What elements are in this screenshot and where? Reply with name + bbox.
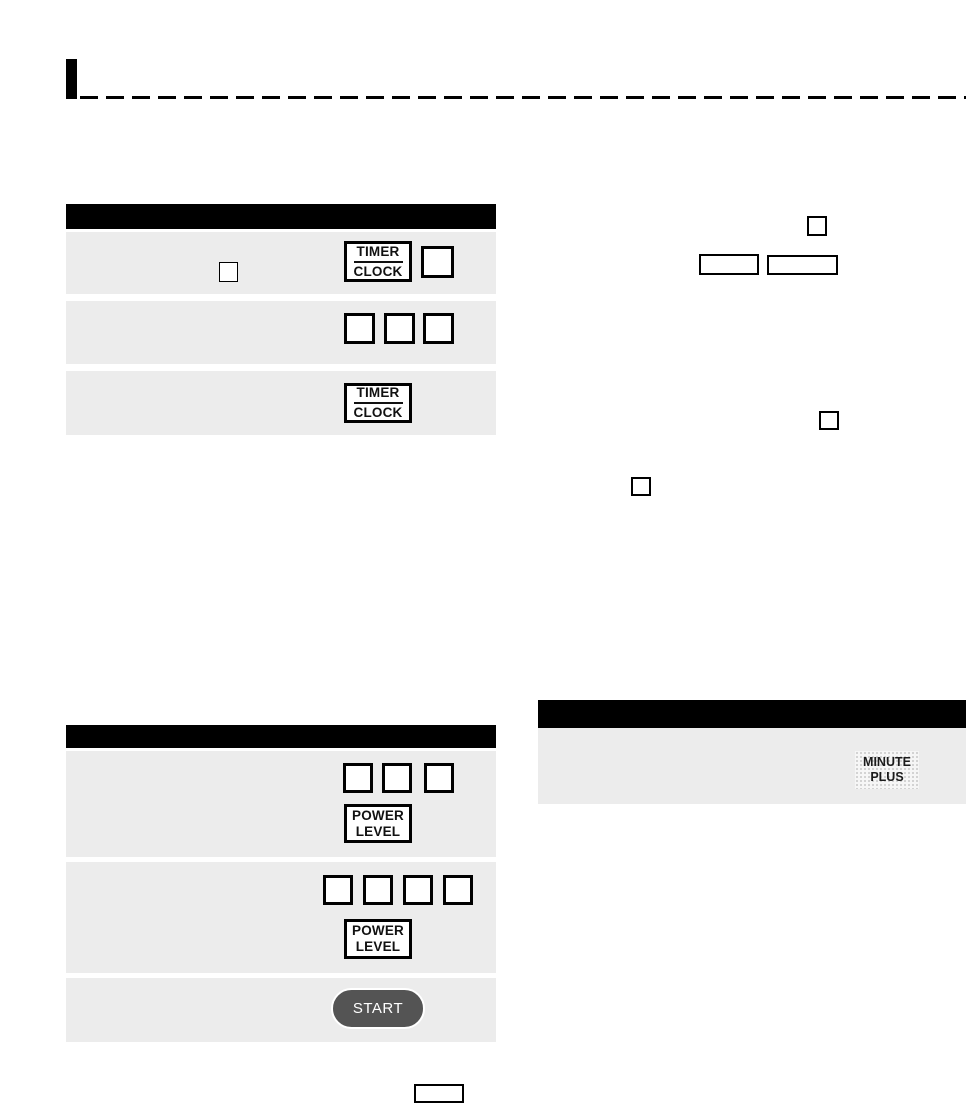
number-key-square — [443, 875, 473, 905]
instruction-table-2-row-3: START — [66, 978, 496, 1042]
number-key-square — [363, 875, 393, 905]
instruction-table-1-header — [66, 204, 496, 229]
number-key-square — [424, 763, 454, 793]
instruction-table-3-header — [538, 700, 966, 728]
inline-key-square — [807, 216, 827, 236]
instruction-table-1-row-2 — [66, 301, 496, 364]
manual-page: TIMER CLOCK TIMER CLOCK POWER LEVEL — [0, 0, 966, 1104]
section-title-bar — [66, 59, 77, 99]
inline-key-square — [819, 411, 839, 430]
timer-clock-button: TIMER CLOCK — [344, 241, 412, 282]
timer-clock-label-top: TIMER — [354, 385, 403, 404]
instruction-table-2-header — [66, 725, 496, 748]
number-key-square — [421, 246, 454, 278]
start-button-label: START — [353, 1000, 403, 1017]
number-key-square — [403, 875, 433, 905]
inline-key-rect — [699, 254, 759, 275]
inline-key-square — [631, 477, 651, 496]
start-button: START — [331, 988, 425, 1029]
power-level-button: POWER LEVEL — [344, 919, 412, 959]
instruction-table-3-row-1: MINUTE PLUS — [538, 728, 966, 804]
timer-clock-label-bottom: CLOCK — [354, 404, 403, 421]
power-level-label-top: POWER — [350, 808, 406, 824]
dashed-divider-line — [80, 96, 966, 99]
timer-clock-label-top: TIMER — [354, 244, 403, 263]
minute-plus-label-top: MINUTE — [863, 755, 911, 770]
inline-key-square — [219, 262, 238, 282]
power-level-button: POWER LEVEL — [344, 804, 412, 843]
number-key-square — [323, 875, 353, 905]
power-level-label-top: POWER — [350, 923, 406, 939]
instruction-table-2-row-2: POWER LEVEL — [66, 862, 496, 973]
minute-plus-button: MINUTE PLUS — [855, 751, 919, 789]
power-level-label-bottom: LEVEL — [354, 824, 403, 840]
number-key-square — [343, 763, 373, 793]
timer-clock-button: TIMER CLOCK — [344, 383, 412, 423]
number-key-square — [382, 763, 412, 793]
inline-key-rect — [414, 1084, 464, 1103]
number-key-square — [423, 313, 454, 344]
minute-plus-label-bottom: PLUS — [870, 770, 903, 785]
number-key-square — [344, 313, 375, 344]
instruction-table-1-row-3: TIMER CLOCK — [66, 371, 496, 435]
instruction-table-1-row-1: TIMER CLOCK — [66, 232, 496, 294]
timer-clock-label-bottom: CLOCK — [354, 263, 403, 280]
number-key-square — [384, 313, 415, 344]
inline-key-rect — [767, 255, 838, 275]
power-level-label-bottom: LEVEL — [354, 939, 403, 955]
instruction-table-2-row-1: POWER LEVEL — [66, 751, 496, 857]
